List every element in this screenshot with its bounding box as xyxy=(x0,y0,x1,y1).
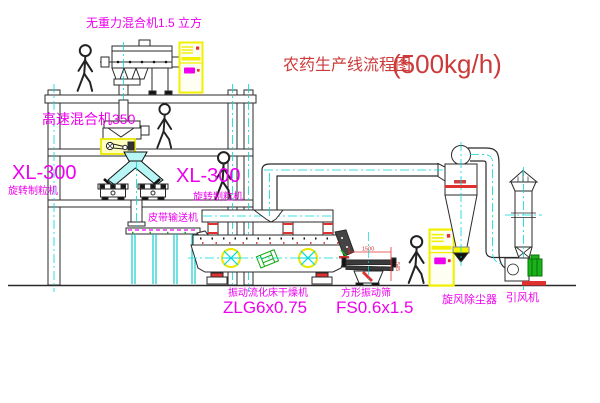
gravity-free-mixer xyxy=(100,40,186,95)
label-cyclone: 旋风除尘器 xyxy=(442,292,497,306)
title-capacity: (500kg/h) xyxy=(392,49,502,79)
dryer-feet xyxy=(207,273,332,284)
person-level2 xyxy=(157,104,171,148)
label-gravity-mixer: 无重力混合机1.5 立方 xyxy=(86,15,202,30)
label-dryer-model: ZLG6x0.75 xyxy=(223,298,307,317)
sieve-height-dim: 545 xyxy=(394,262,400,271)
hood-stubs xyxy=(208,222,333,235)
label-high-speed-mixer: 高速混合机350 xyxy=(42,111,136,127)
label-granulator-left-name: 旋转制粒机 xyxy=(8,184,58,197)
granulator-right xyxy=(138,184,168,200)
control-cabinet-ground xyxy=(430,230,454,286)
y-splitter xyxy=(104,152,163,187)
label-granulator-right-model: XL-300 xyxy=(176,165,241,187)
granulator-left xyxy=(98,184,128,200)
label-fan: 引风机 xyxy=(506,290,539,304)
label-belt-conveyor: 皮带输送机 xyxy=(148,211,198,224)
high-speed-mixer xyxy=(101,100,149,154)
label-granulator-left-model: XL-300 xyxy=(12,162,77,184)
induced-draft-fan xyxy=(505,255,546,286)
person-roof xyxy=(78,45,93,91)
label-sieve-model: FS0.6x1.5 xyxy=(336,298,414,317)
drawing-canvas: 1500 545 xyxy=(0,0,600,403)
process-flow-drawing: 1500 545 xyxy=(0,0,600,403)
floor-slab-roof xyxy=(45,95,256,103)
person-ground xyxy=(409,236,424,283)
drawing-title: 农药生产线流程图 (500kg/h) xyxy=(283,49,502,79)
sieve-length-dim: 1500 xyxy=(362,247,374,253)
vibrating-sieve xyxy=(335,230,396,286)
label-granulator-right-name: 旋转制粒机 xyxy=(193,190,243,203)
control-cabinet-roof xyxy=(180,43,203,93)
